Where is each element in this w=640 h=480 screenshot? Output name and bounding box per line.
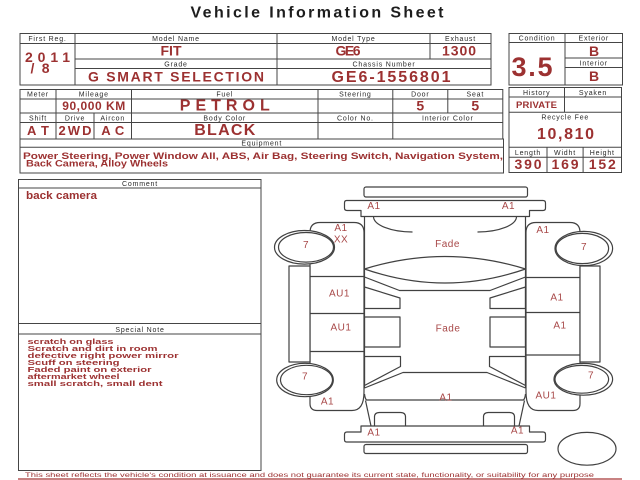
svg-text:small scratch, small dent: small scratch, small dent xyxy=(28,381,164,388)
svg-text:Special Note: Special Note xyxy=(115,327,164,334)
svg-text:Steering: Steering xyxy=(339,92,371,99)
svg-text:XX: XX xyxy=(334,235,348,246)
svg-text:Mileage: Mileage xyxy=(79,92,109,99)
svg-text:FIT: FIT xyxy=(161,43,182,59)
svg-text:This sheet reflects the vehicl: This sheet reflects the vehicle's condit… xyxy=(25,472,595,479)
svg-text:Condition: Condition xyxy=(519,36,556,43)
svg-text:152: 152 xyxy=(589,156,616,172)
svg-text:7: 7 xyxy=(303,240,309,251)
svg-text:AU1: AU1 xyxy=(329,289,350,300)
svg-text:169: 169 xyxy=(552,156,579,172)
svg-text:Back Camera, Alloy Wheels: Back Camera, Alloy Wheels xyxy=(26,158,168,169)
svg-text:AT: AT xyxy=(27,123,49,138)
svg-text:Exterior: Exterior xyxy=(578,36,609,43)
svg-text:1300: 1300 xyxy=(442,43,476,59)
svg-text:AU1: AU1 xyxy=(536,391,557,402)
svg-text:aftermarket wheel: aftermarket wheel xyxy=(28,374,120,381)
svg-text:A1: A1 xyxy=(502,201,515,212)
svg-text:A1: A1 xyxy=(367,428,380,439)
svg-text:PETROL: PETROL xyxy=(180,98,270,115)
svg-text:Fade: Fade xyxy=(436,324,461,335)
svg-text:A1: A1 xyxy=(550,293,563,304)
svg-text:Syaken: Syaken xyxy=(579,90,607,97)
svg-text:A1: A1 xyxy=(511,426,524,437)
svg-text:Comment: Comment xyxy=(122,181,158,188)
svg-text:A1: A1 xyxy=(334,223,347,234)
svg-text:G SMART SELECTION: G SMART SELECTION xyxy=(88,69,264,85)
svg-text:scratch on glass: scratch on glass xyxy=(28,339,114,346)
svg-text:A1: A1 xyxy=(439,393,452,404)
svg-text:GE6-1556801: GE6-1556801 xyxy=(332,69,451,86)
svg-text:Interior: Interior xyxy=(580,61,608,68)
svg-text:First Reg.: First Reg. xyxy=(28,36,66,43)
svg-text:A1: A1 xyxy=(367,201,380,212)
svg-text:Scuff on steering: Scuff on steering xyxy=(28,360,120,367)
svg-text:90,000 KM: 90,000 KM xyxy=(62,99,125,113)
svg-text:AC: AC xyxy=(101,123,125,138)
svg-text:10,810: 10,810 xyxy=(537,126,594,143)
svg-text:A1: A1 xyxy=(536,225,549,236)
svg-text:Drive: Drive xyxy=(65,116,85,123)
svg-text:History: History xyxy=(523,90,550,97)
svg-text:Aircon: Aircon xyxy=(100,116,125,123)
svg-text:Faded paint on exterior: Faded paint on exterior xyxy=(28,367,152,374)
svg-text:Scratch and dirt in room: Scratch and dirt in room xyxy=(28,346,158,353)
svg-text:BLACK: BLACK xyxy=(194,122,255,139)
svg-text:5: 5 xyxy=(416,98,424,114)
svg-text:Equipment: Equipment xyxy=(241,141,282,148)
svg-text:Recycle Fee: Recycle Fee xyxy=(541,115,589,122)
svg-text:Shift: Shift xyxy=(29,116,47,123)
svg-text:GE6: GE6 xyxy=(336,43,361,59)
svg-text:A1: A1 xyxy=(321,397,334,408)
svg-text:Meter: Meter xyxy=(27,92,49,99)
svg-text:Color No.: Color No. xyxy=(337,116,374,123)
svg-text:3.5: 3.5 xyxy=(512,52,553,82)
svg-text:AU1: AU1 xyxy=(331,323,352,334)
svg-text:B: B xyxy=(589,43,599,59)
svg-text:7: 7 xyxy=(302,372,308,383)
svg-text:2WD: 2WD xyxy=(59,123,92,138)
svg-text:defective right power mirror: defective right power mirror xyxy=(28,353,179,360)
svg-text:5: 5 xyxy=(471,98,479,114)
svg-text:7: 7 xyxy=(581,242,587,253)
svg-text:Fade: Fade xyxy=(435,239,460,250)
svg-text:B: B xyxy=(589,68,599,84)
svg-text:Vehicle Information Sheet: Vehicle Information Sheet xyxy=(191,5,446,22)
svg-text:back camera: back camera xyxy=(26,190,98,202)
svg-text:PRIVATE: PRIVATE xyxy=(516,100,557,111)
svg-text:A1: A1 xyxy=(553,321,566,332)
svg-text:Chassis Number: Chassis Number xyxy=(353,62,416,69)
svg-text:Interior Color: Interior Color xyxy=(422,116,474,123)
svg-text:Grade: Grade xyxy=(164,62,187,69)
svg-text:390: 390 xyxy=(515,156,542,172)
svg-text:7: 7 xyxy=(588,371,594,382)
